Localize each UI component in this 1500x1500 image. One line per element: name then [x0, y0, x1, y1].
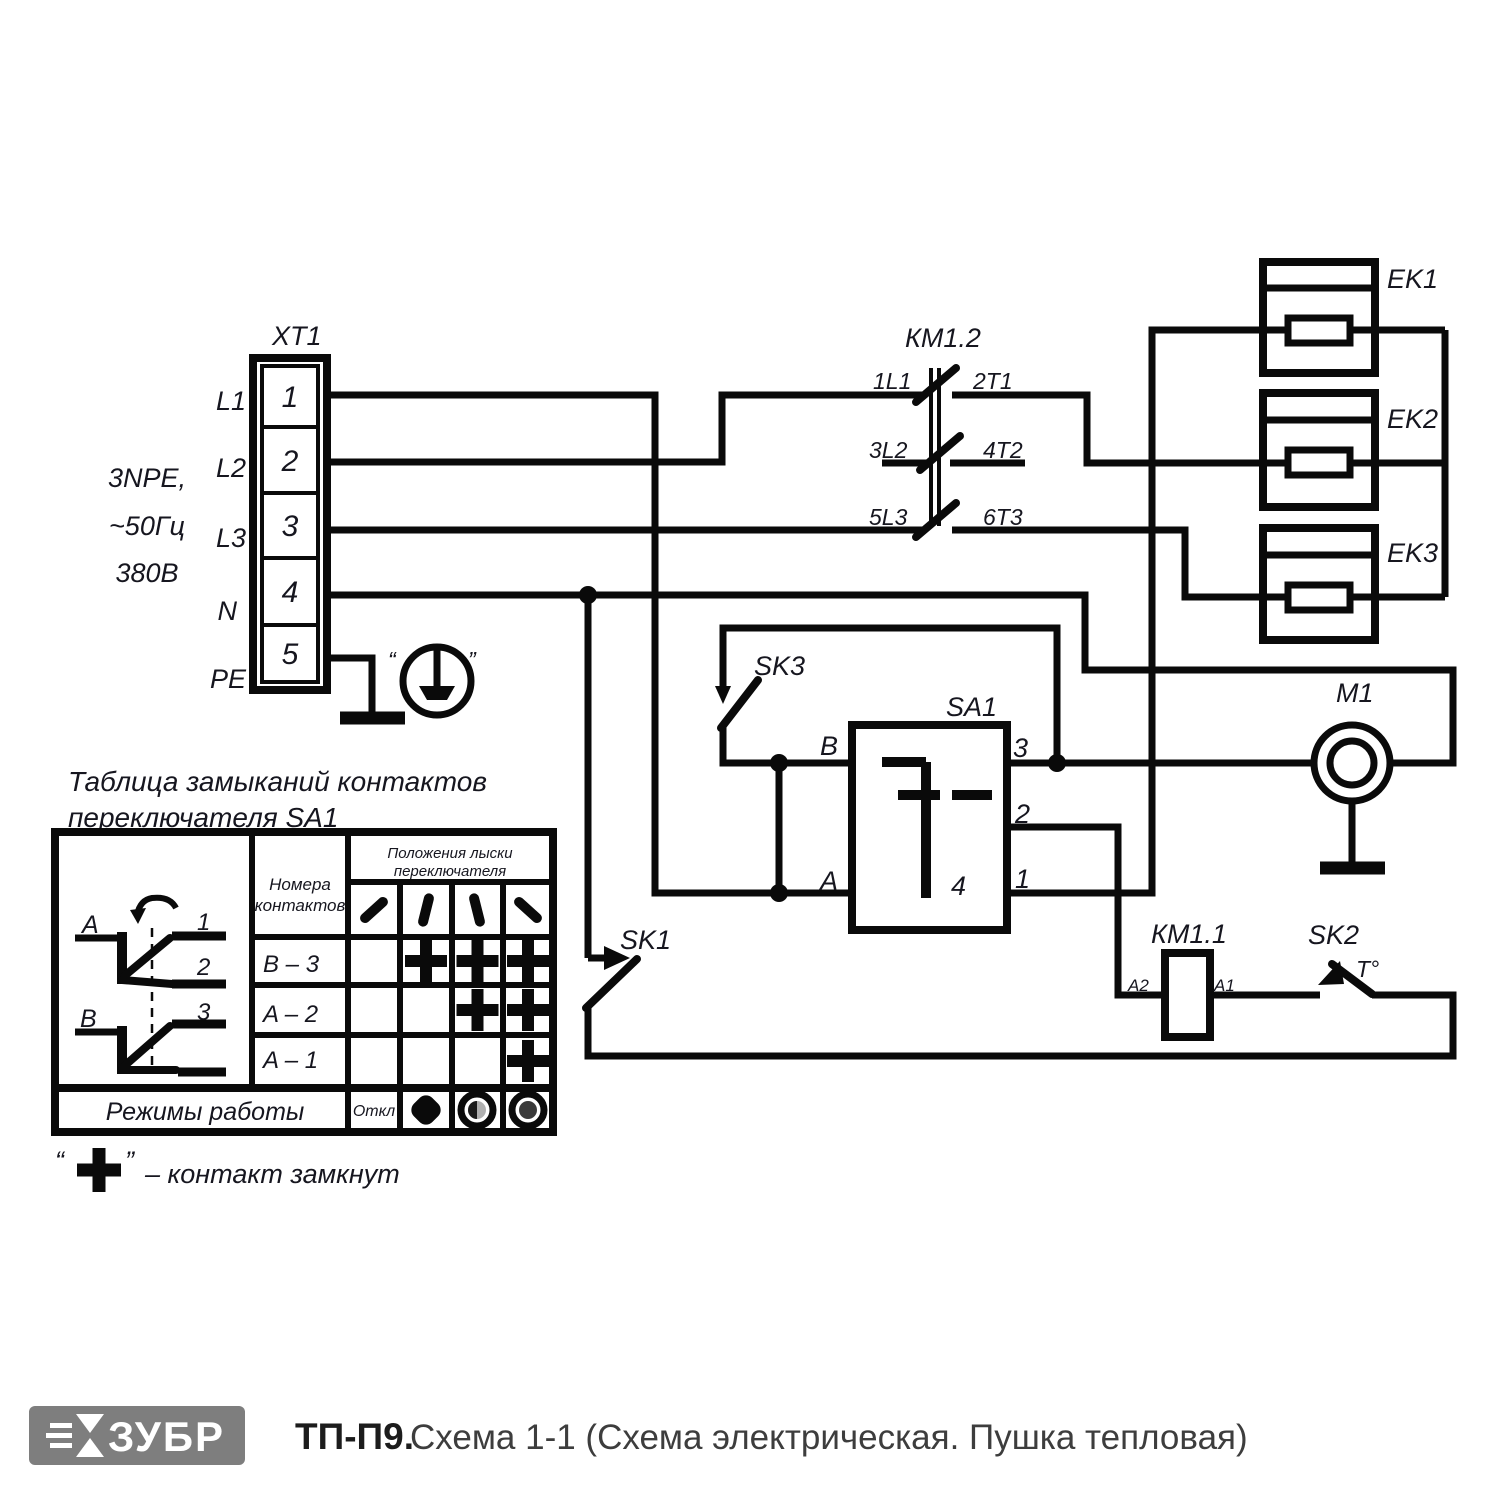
xt1-terminal-3: 3 — [282, 510, 299, 543]
km12-blade-1 — [916, 368, 956, 402]
wire-l2 — [327, 395, 923, 462]
full-power-icon — [512, 1094, 544, 1126]
thermal-switch-sk2: SK2 T° — [1308, 920, 1379, 994]
wire-pe — [327, 658, 372, 712]
sa1-label: SA1 — [946, 692, 997, 722]
wire-label-l1: L1 — [216, 386, 246, 416]
schematic-page: XT1 1 2 3 4 5 L1 L2 L3 N PE 3NPE, ~50Гц … — [0, 0, 1500, 1500]
km12-1l1: 1L1 — [873, 368, 911, 394]
contacts-header-1: Номера — [269, 875, 331, 894]
knob-position-icon — [358, 895, 390, 925]
xt1-terminal-1: 1 — [282, 381, 299, 414]
brand-text: ЗУБР — [108, 1413, 225, 1460]
sk3-label: SK3 — [754, 651, 805, 681]
wire-label-l3: L3 — [216, 523, 246, 553]
km12-linkage — [931, 368, 939, 526]
closed-contact-cross-icon — [507, 940, 549, 982]
knob-position-icon — [417, 892, 435, 927]
note-text: – контакт замкнут — [144, 1159, 400, 1189]
legend-note: “ ” – контакт замкнут — [55, 1146, 400, 1192]
closed-contact-cross-icon — [457, 989, 499, 1031]
closed-contact-cross-icon — [507, 1040, 549, 1082]
closed-contact-cross-icon — [405, 940, 447, 982]
knob-position-icon — [512, 895, 544, 925]
junction-dot — [770, 754, 788, 772]
xt1-label: XT1 — [271, 321, 322, 351]
junction-dot — [579, 586, 597, 604]
wire-sa1-1-ek1 — [1007, 330, 1288, 893]
wire-n — [327, 595, 1453, 763]
km12-3l2: 3L2 — [869, 437, 908, 463]
contact-arrow-icon — [715, 686, 731, 704]
sa1-term-4: 4 — [951, 871, 966, 901]
sa1-term-2: 2 — [1014, 799, 1030, 829]
wire-control-bus — [588, 995, 1453, 1056]
xt1-terminal-2: 2 — [281, 445, 299, 478]
sk1-label: SK1 — [620, 925, 671, 955]
sa1-term-a: A — [818, 866, 838, 896]
circuit-diagram: XT1 1 2 3 4 5 L1 L2 L3 N PE 3NPE, ~50Гц … — [0, 0, 1500, 1500]
heater-element-icon — [1288, 585, 1350, 610]
table-title-line1: Таблица замыканий контактов — [68, 766, 487, 797]
earth-quote-left: “ — [388, 647, 397, 673]
closed-contact-marks — [405, 940, 549, 1082]
supply-label-2: ~50Гц — [109, 511, 185, 541]
mode-off-label: Откл — [353, 1103, 395, 1120]
switch-sk1: SK1 — [586, 925, 671, 1008]
km11-a1: A1 — [1213, 976, 1235, 995]
sk2-label: SK2 — [1308, 920, 1359, 950]
modes-label: Режимы работы — [106, 1098, 305, 1126]
switch-sa1: SA1 B A 3 2 1 4 — [818, 692, 1030, 930]
wire-label-n: N — [218, 596, 238, 626]
supply-label-3: 380В — [115, 558, 178, 588]
half-power-icon — [461, 1094, 493, 1126]
supply-label-1: 3NPE, — [108, 463, 186, 493]
footer-caption: Схема 1-1 (Схема электрическая. Пушка те… — [410, 1418, 1248, 1457]
sa1-term-3: 3 — [1013, 733, 1028, 763]
contactor-coil-km11: КМ1.1 A2 A1 — [1127, 919, 1235, 1037]
km12-4t2: 4T2 — [983, 437, 1023, 463]
positions-header-2: переключателя — [394, 863, 506, 880]
km12-5l3: 5L3 — [869, 504, 908, 530]
heater-element-icon — [1288, 318, 1350, 343]
junction-dot — [1048, 754, 1066, 772]
heater-ek2: EK2 — [1263, 393, 1438, 507]
km12-2t1: 2T1 — [972, 368, 1013, 394]
fan-mode-icon — [408, 1092, 445, 1129]
xt1-terminal-5: 5 — [282, 638, 299, 671]
note-quote-left: “ — [55, 1146, 66, 1176]
junction-dot — [770, 884, 788, 902]
sk2-temp-label: T° — [1356, 956, 1379, 982]
km11-label: КМ1.1 — [1151, 919, 1227, 949]
xt1-terminal-block: XT1 1 2 3 4 5 L1 L2 L3 N PE 3NPE, ~50Гц … — [108, 321, 327, 694]
footer: ЗУБР ТП-П9. Схема 1-1 (Схема электрическ… — [29, 1406, 1248, 1465]
motor-m1: M1 — [1314, 678, 1390, 868]
coil-icon — [1165, 953, 1210, 1037]
row-contacts-2: A – 2 — [261, 1001, 318, 1028]
footer-model: ТП-П9. — [295, 1416, 414, 1457]
sa1-cam-icon — [882, 762, 992, 898]
wire-sa1-2-coil — [1007, 827, 1165, 995]
closed-contact-cross-icon — [77, 1148, 121, 1192]
heater-element-icon — [1288, 450, 1350, 475]
thermal-switch-sk3: SK3 — [715, 651, 805, 728]
positions-header-1: Положения лыски — [387, 845, 513, 862]
ek3-label: EK3 — [1387, 538, 1438, 568]
xt1-terminal-4: 4 — [282, 576, 299, 609]
km12-6t3: 6T3 — [983, 504, 1023, 530]
earth-circle-icon: “ ” — [388, 647, 477, 715]
m1-label: M1 — [1336, 678, 1374, 708]
contactor-km12: КМ1.2 1L1 2T1 3L2 4T2 5L3 6T3 — [869, 323, 1023, 537]
note-quote-right: ” — [125, 1146, 135, 1176]
earth-quote-right: ” — [468, 647, 477, 673]
ek1-label: EK1 — [1387, 264, 1438, 294]
wire-label-l2: L2 — [216, 453, 246, 483]
knob-position-icon — [468, 892, 486, 927]
km11-a2: A2 — [1127, 976, 1149, 995]
closed-contact-cross-icon — [457, 940, 499, 982]
wire-6t3-ek3 — [952, 530, 1288, 597]
diagram-2-label: 2 — [196, 954, 210, 981]
contacts-header-2: контактов — [255, 896, 346, 915]
table-sa1-positions: Таблица замыканий контактов переключател… — [55, 766, 553, 1192]
heater-ek1: EK1 — [1263, 262, 1438, 373]
sa1-contact-diagram: A B 1 2 3 — [75, 898, 226, 1074]
km12-label: КМ1.2 — [905, 323, 981, 353]
km12-blade-3 — [916, 503, 956, 537]
sa1-term-b: B — [820, 731, 838, 761]
wire-label-pe: PE — [210, 664, 247, 694]
row-contacts-3: A – 1 — [261, 1047, 318, 1074]
ek2-label: EK2 — [1387, 404, 1438, 434]
sa1-term-1: 1 — [1015, 864, 1030, 894]
closed-contact-cross-icon — [507, 989, 549, 1031]
row-contacts-1: B – 3 — [263, 951, 320, 978]
heater-ek3: EK3 — [1263, 528, 1438, 640]
